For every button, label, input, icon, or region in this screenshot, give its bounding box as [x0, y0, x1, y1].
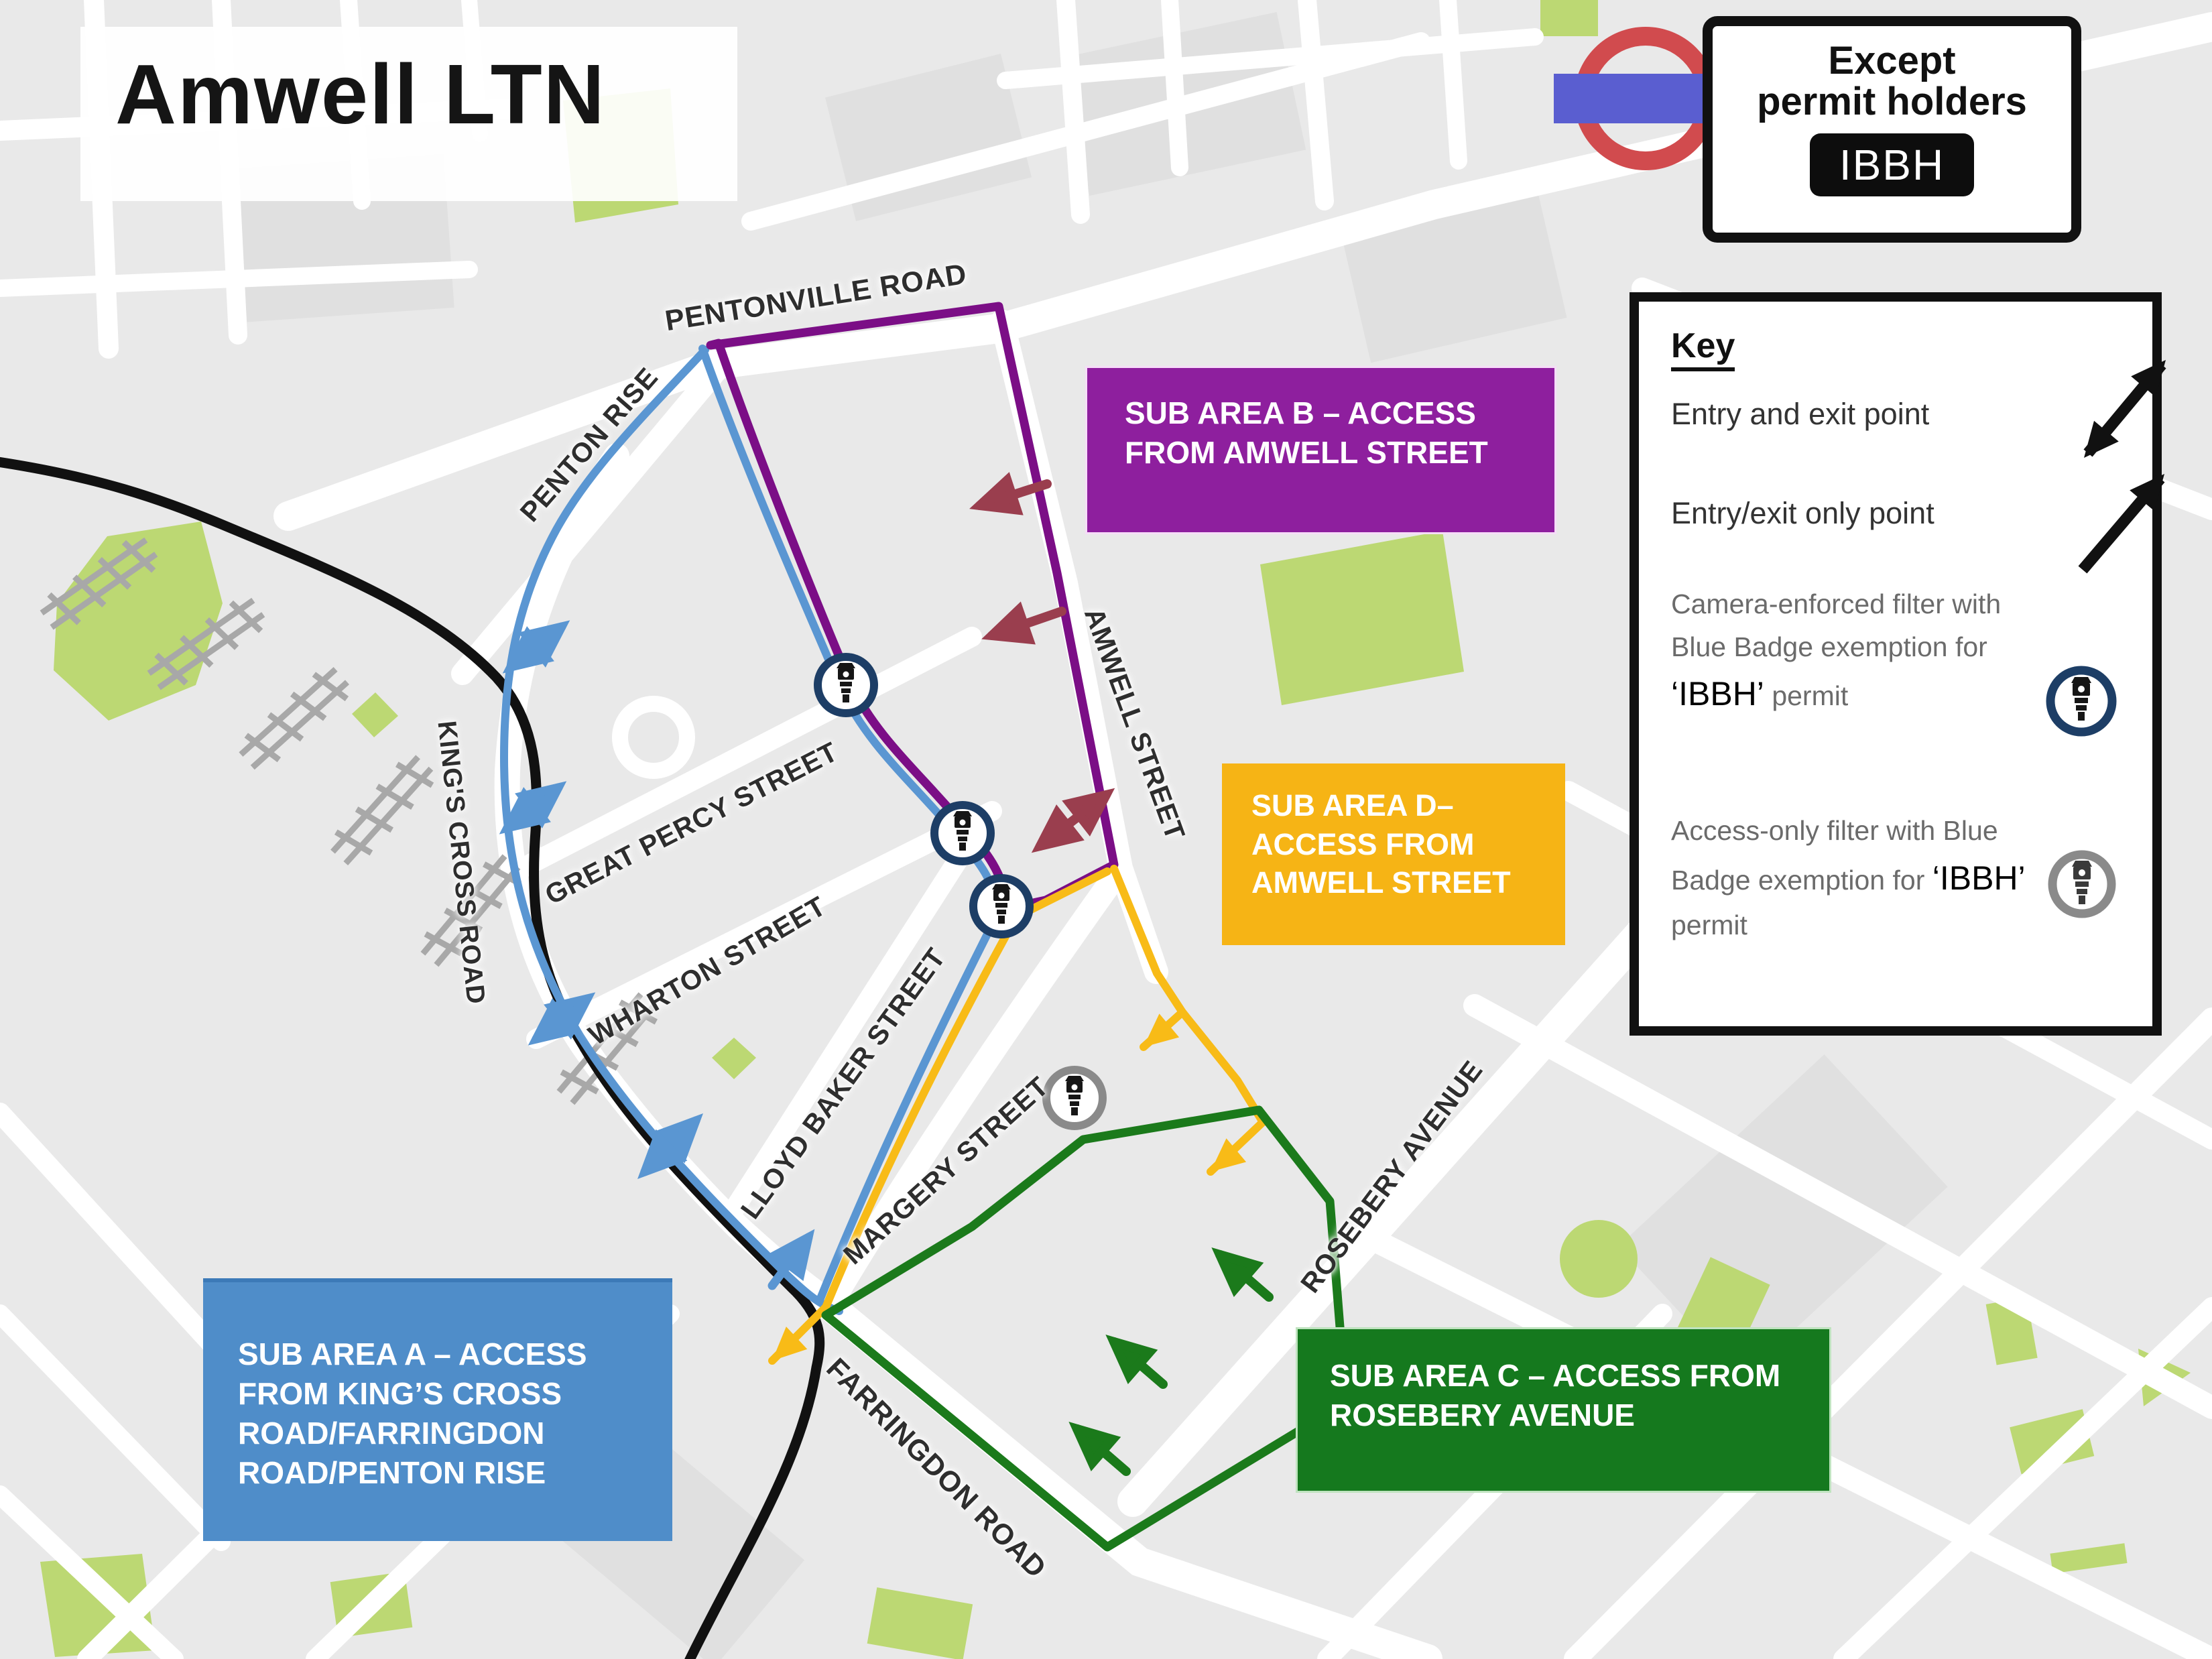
permit-code-plate: IBBH [1810, 133, 1974, 196]
access-filter-legend-icon [2044, 846, 2120, 922]
map-key: Key Entry and exit point Entry/exit only… [1630, 292, 2162, 1036]
key-heading: Key [1671, 326, 1735, 371]
key-access-filter-label: Access-only filter with Blue Badge exemp… [1671, 810, 2036, 947]
sub-area-c-label: SUB AREA C – ACCESS FROM ROSEBERY AVENUE [1296, 1327, 1831, 1493]
key-entry-exit-only-label: Entry/exit only point [1671, 496, 1934, 531]
sign-line2: permit holders [1713, 82, 2071, 123]
no-entry-roundel-icon [1574, 27, 1717, 170]
camera-filter-icon [973, 878, 1030, 934]
key-entry-exit-label: Entry and exit point [1671, 397, 1929, 432]
access-filter-icon [1046, 1070, 1103, 1126]
map-title: Amwell LTN [80, 27, 737, 201]
sub-area-a-label: SUB AREA A – ACCESS FROM KING’S CROSS RO… [203, 1278, 672, 1541]
entry-exit-arrow-icon [2068, 346, 2182, 473]
permit-holders-sign: Except permit holders IBBH [1703, 16, 2081, 243]
entry-exit-only-arrow-icon [2068, 461, 2182, 582]
camera-filter-icon [934, 805, 991, 861]
amwell-ltn-map: PENTONVILLE ROAD PENTON RISE KING'S CROS… [0, 0, 2212, 1659]
sub-area-b-label: SUB AREA B – ACCESS FROM AMWELL STREET [1085, 366, 1556, 534]
key-camera-filter-label: Camera-enforced filter with Blue Badge e… [1671, 583, 2036, 721]
camera-filter-icon [818, 657, 874, 713]
sub-area-d-label: SUB AREA D– ACCESS FROM AMWELL STREET [1222, 763, 1565, 945]
camera-filter-legend-icon [2041, 661, 2122, 741]
sign-line1: Except [1713, 41, 2071, 82]
